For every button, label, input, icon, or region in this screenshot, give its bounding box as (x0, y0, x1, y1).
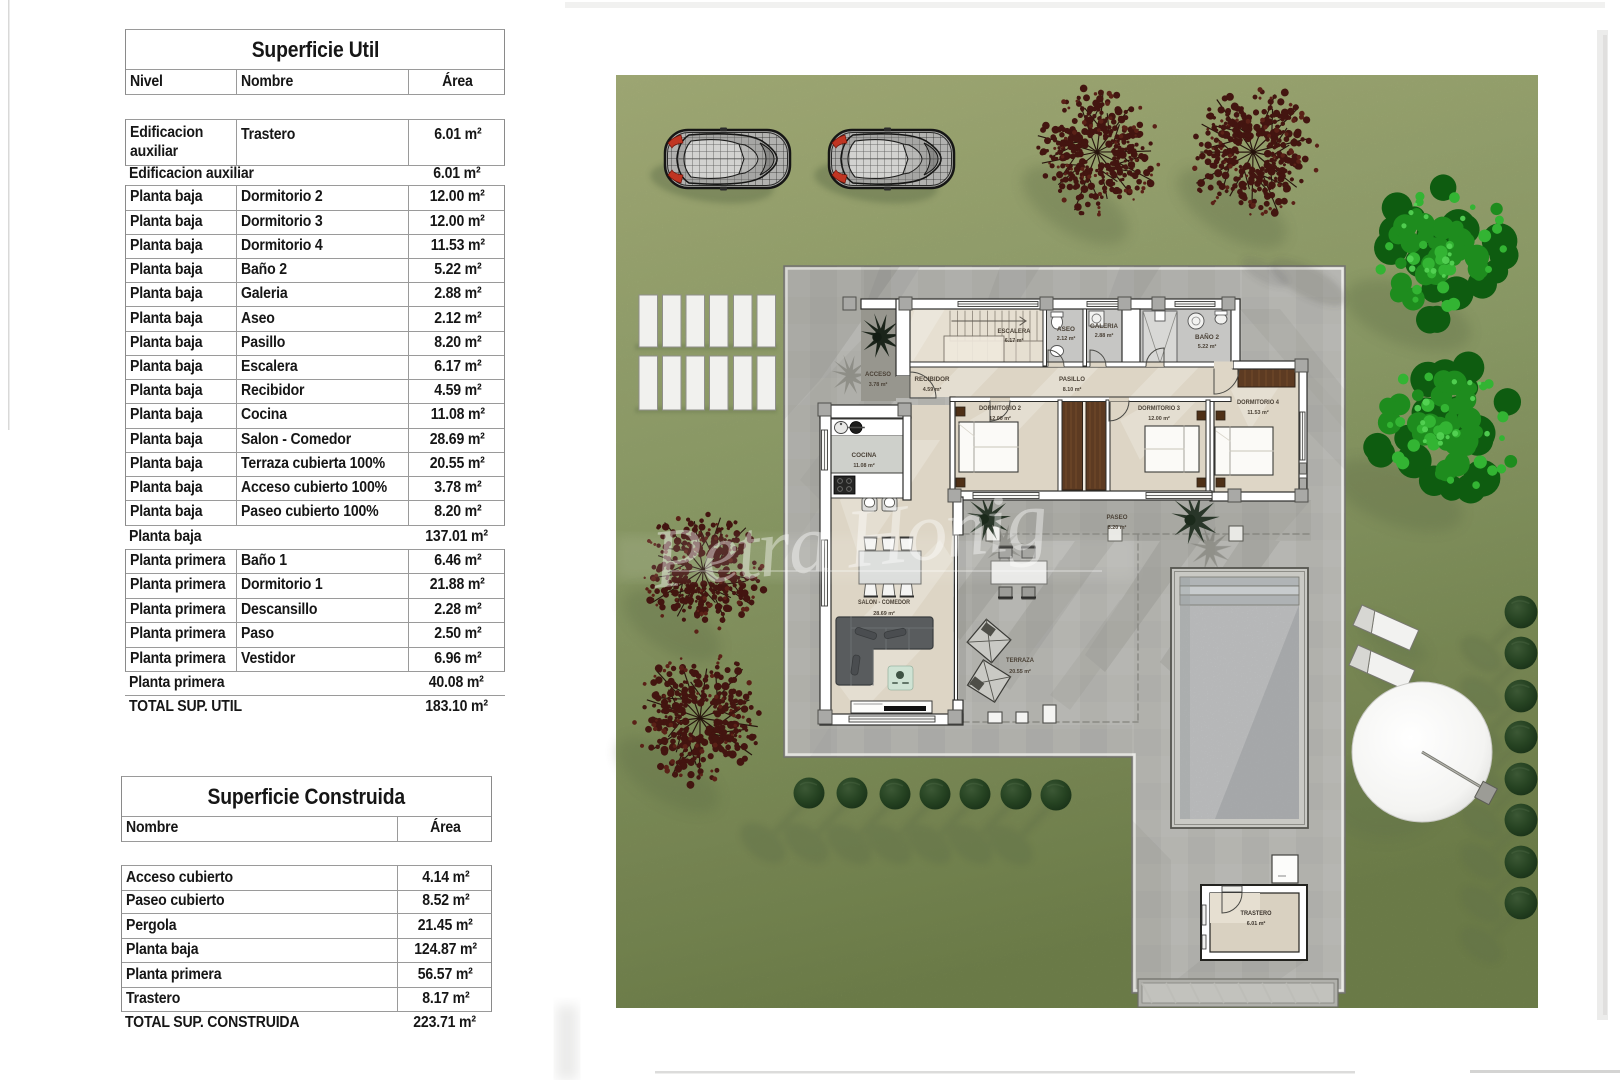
svg-text:ESCALERA: ESCALERA (998, 329, 1032, 335)
svg-text:BAÑO 2: BAÑO 2 (1195, 334, 1220, 341)
svg-text:DORMITORIO 2: DORMITORIO 2 (979, 406, 1022, 412)
svg-text:6.01 m²: 6.01 m² (1247, 921, 1266, 927)
svg-text:PASEO: PASEO (1107, 515, 1128, 521)
svg-text:8.20 m²: 8.20 m² (1108, 525, 1127, 531)
svg-text:11.53 m²: 11.53 m² (1247, 410, 1268, 416)
svg-text:TRASTERO: TRASTERO (1241, 910, 1272, 917)
svg-text:11.08 m²: 11.08 m² (853, 463, 874, 469)
svg-text:TERRAZA: TERRAZA (1006, 658, 1035, 664)
svg-text:RECIBIDOR: RECIBIDOR (915, 377, 951, 383)
svg-text:6.17 m²: 6.17 m² (1005, 338, 1024, 344)
svg-text:COCINA: COCINA (852, 453, 878, 459)
svg-text:2.88 m²: 2.88 m² (1095, 333, 1114, 339)
svg-text:3.78 m²: 3.78 m² (869, 382, 888, 388)
svg-text:12.00 m²: 12.00 m² (1148, 416, 1170, 422)
svg-text:8.10 m²: 8.10 m² (1063, 387, 1082, 393)
svg-text:ASEO: ASEO (1057, 327, 1075, 333)
svg-text:ACCESO: ACCESO (865, 372, 891, 378)
svg-text:28.69 m²: 28.69 m² (873, 611, 895, 617)
svg-text:5.22 m²: 5.22 m² (1198, 344, 1217, 350)
svg-text:12.00 m²: 12.00 m² (989, 416, 1011, 422)
svg-text:DORMITORIO 3: DORMITORIO 3 (1138, 406, 1181, 412)
svg-text:PASILLO: PASILLO (1059, 377, 1085, 383)
svg-text:20.55 m²: 20.55 m² (1009, 669, 1031, 675)
svg-text:SALON - COMEDOR: SALON - COMEDOR (858, 600, 911, 606)
svg-text:2.12 m²: 2.12 m² (1057, 336, 1076, 342)
svg-text:GALERIA: GALERIA (1090, 324, 1119, 330)
svg-text:DORMITORIO 4: DORMITORIO 4 (1237, 400, 1280, 406)
svg-text:4.59 m²: 4.59 m² (923, 387, 942, 393)
